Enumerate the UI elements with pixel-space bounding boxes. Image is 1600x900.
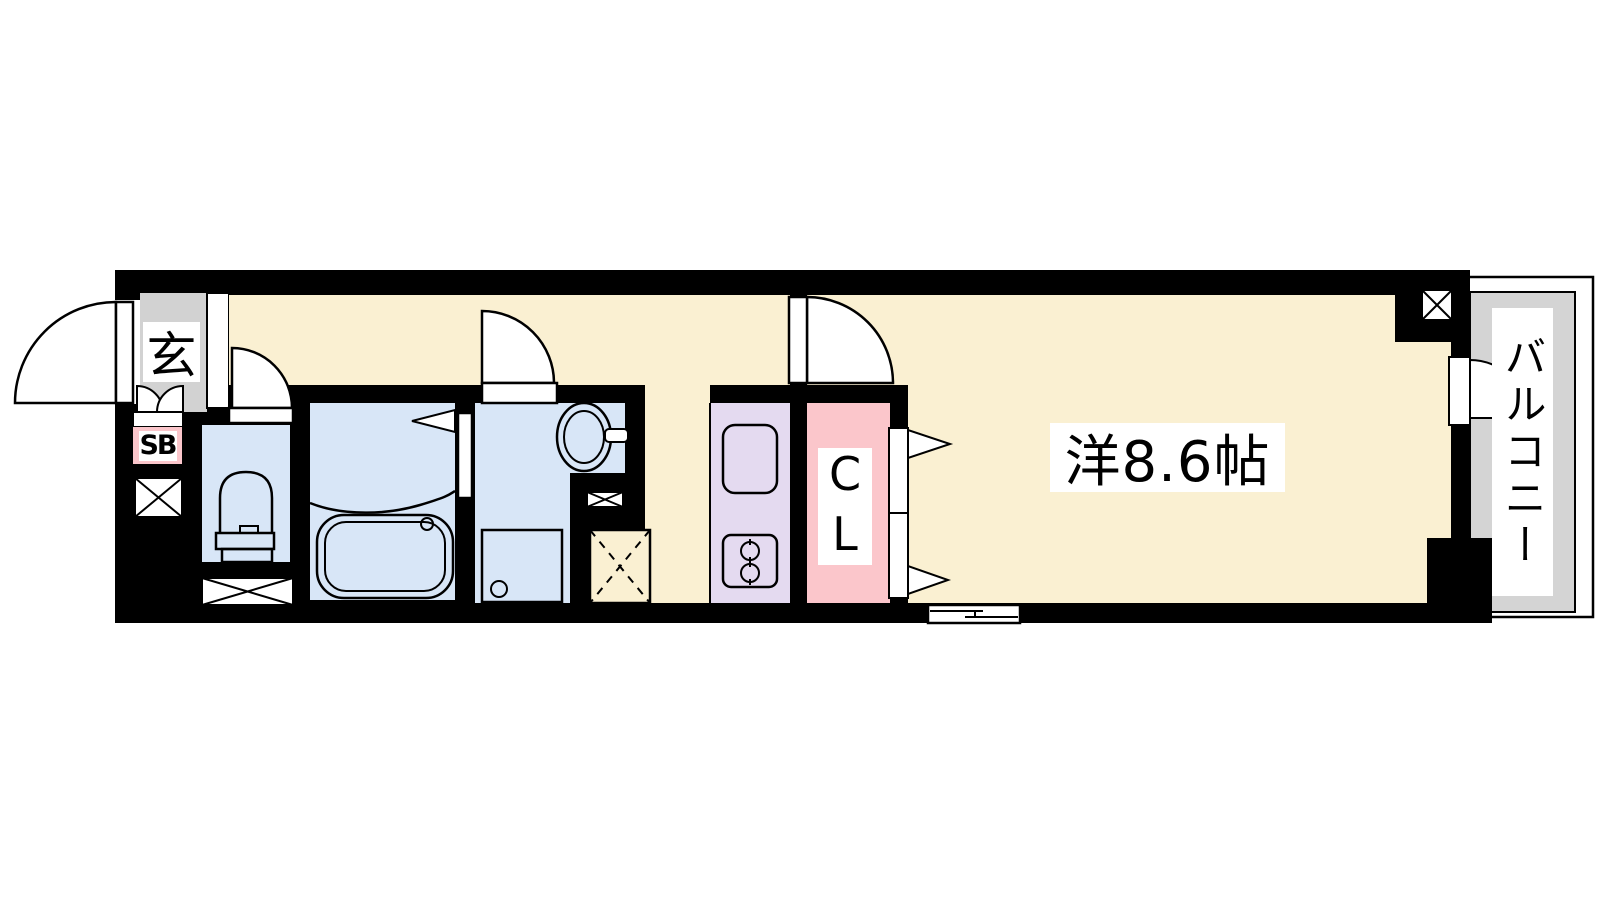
refrigerator-space-icon xyxy=(590,530,650,603)
main-room-label: 洋8.6帖 xyxy=(1050,423,1285,492)
floorplan-drawing xyxy=(0,0,1600,900)
entrance-step-strip xyxy=(207,293,229,408)
balcony-label: バルコニー xyxy=(1492,308,1553,596)
shaft-box-left xyxy=(135,478,182,517)
entrance-label: 玄 xyxy=(143,322,200,382)
closet-door-panel-top xyxy=(889,428,908,513)
closet-label: CL xyxy=(818,448,872,565)
main-room-upper xyxy=(807,295,1451,385)
shaft-box-washroom xyxy=(587,492,623,507)
sliding-window-icon xyxy=(928,605,1020,623)
shoe-box-label-box: SB xyxy=(133,427,182,464)
washroom-door-leaf xyxy=(482,383,557,403)
balcony-door-leaf xyxy=(1449,357,1470,425)
toilet-door-leaf xyxy=(229,408,293,423)
bath-door-panel xyxy=(458,413,472,498)
shoe-box-base xyxy=(133,412,183,427)
shaft-box-top-right xyxy=(1422,290,1452,320)
entrance-door-arc xyxy=(15,302,116,403)
shaft-box-below-toilet xyxy=(202,578,293,605)
entrance-door-leaf xyxy=(116,302,133,403)
floorplan: 玄 SB CL 洋8.6帖 バルコニー xyxy=(0,0,1600,900)
closet-door-panel-bottom xyxy=(889,513,908,598)
entrance-door xyxy=(15,300,140,404)
shoe-box-label: SB xyxy=(139,431,177,461)
pillar-bottom-right xyxy=(1427,538,1492,623)
kitchen-corridor xyxy=(645,385,710,603)
room-washroom-bottom xyxy=(475,403,570,603)
main-room-door-leaf xyxy=(789,297,807,383)
